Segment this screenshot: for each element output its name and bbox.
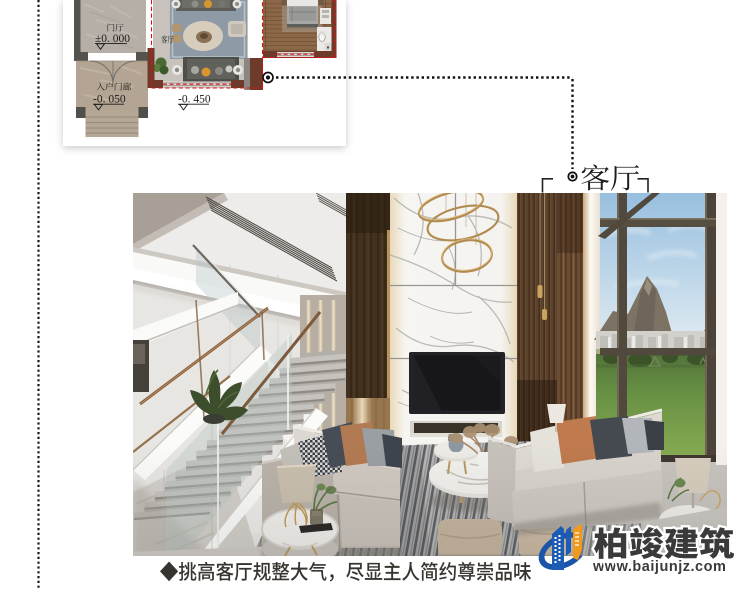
svg-text:www.baijunjz.com: www.baijunjz.com xyxy=(592,559,727,575)
svg-text:-0. 050: -0. 050 xyxy=(93,94,126,106)
svg-text:-0. 450: -0. 450 xyxy=(178,94,211,106)
